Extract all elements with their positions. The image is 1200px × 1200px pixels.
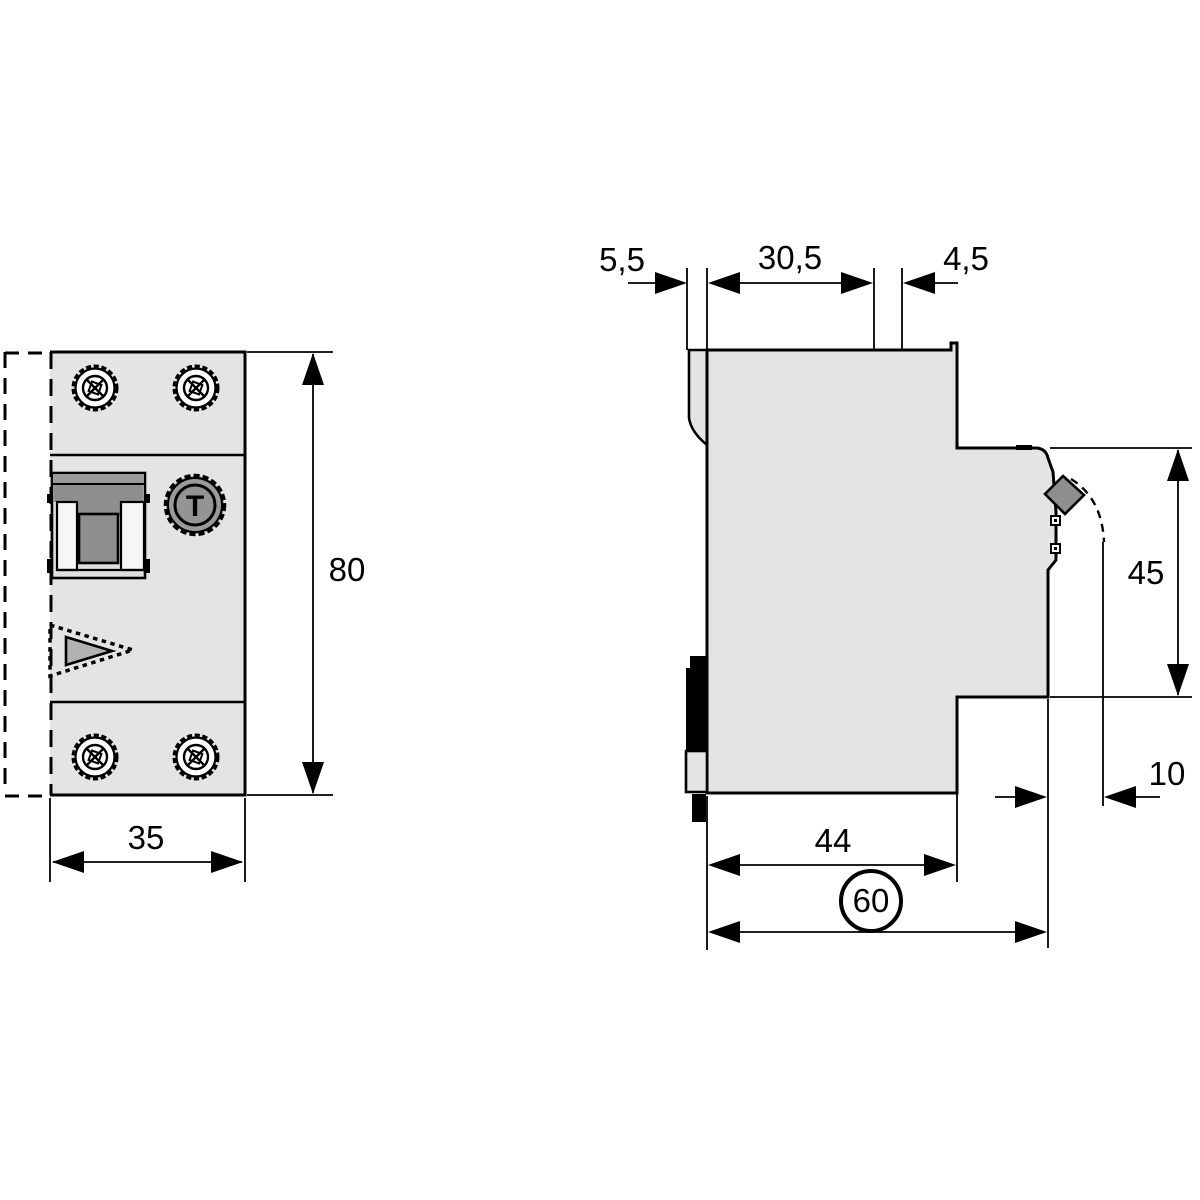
dim-label-front-height: 80 [329,551,366,588]
clip-release-tab[interactable] [692,794,706,822]
din-claw-top [689,350,707,445]
dim-label-handle-clearance: 10 [1149,755,1186,792]
dim-front-height: 80 [247,352,365,795]
switch-toggle[interactable] [79,514,118,563]
dim-label-front-face-height: 45 [1128,554,1165,591]
dim-label-top-step: 4,5 [943,240,989,277]
terminal-screw-bottom-right [175,736,217,778]
dim-top-width: 30,5 [708,239,873,294]
dim-label-total-depth: 60 [853,882,890,919]
drawing-canvas: T 80 35 [0,0,1200,1200]
front-view: T 80 35 [5,352,365,882]
terminal-screw-bottom-left [74,736,116,778]
dim-total-depth: 60 [708,871,1047,943]
dim-top-step: 4,5 [903,240,989,294]
switch-rail-left [57,502,77,570]
test-button[interactable]: T [166,476,224,534]
din-rail-clip[interactable] [686,656,707,822]
phantom-module-outline [5,352,50,796]
test-button-label: T [186,490,204,523]
dim-side-top-group: 5,5 30,5 4,5 [599,239,989,350]
dim-front-width: 35 [50,798,245,882]
dim-label-front-width: 35 [128,819,165,856]
dim-label-din-claw: 5,5 [599,241,645,278]
clip-slider[interactable] [686,751,707,792]
terminal-screw-top-right [175,367,217,409]
dim-label-mounting-depth: 44 [815,822,852,859]
dim-label-top-width: 30,5 [758,239,822,276]
side-view: 5,5 30,5 4,5 45 [599,239,1192,950]
rocker-switch[interactable] [47,473,150,578]
side-body [707,343,1056,793]
clip-spring-upper [686,656,707,751]
switch-rail-right [121,502,144,570]
dim-handle-clearance: 10 [995,699,1185,948]
dim-din-claw: 5,5 [599,241,687,294]
technical-drawing: T 80 35 [0,0,1200,1200]
terminal-screw-top-left [74,367,116,409]
